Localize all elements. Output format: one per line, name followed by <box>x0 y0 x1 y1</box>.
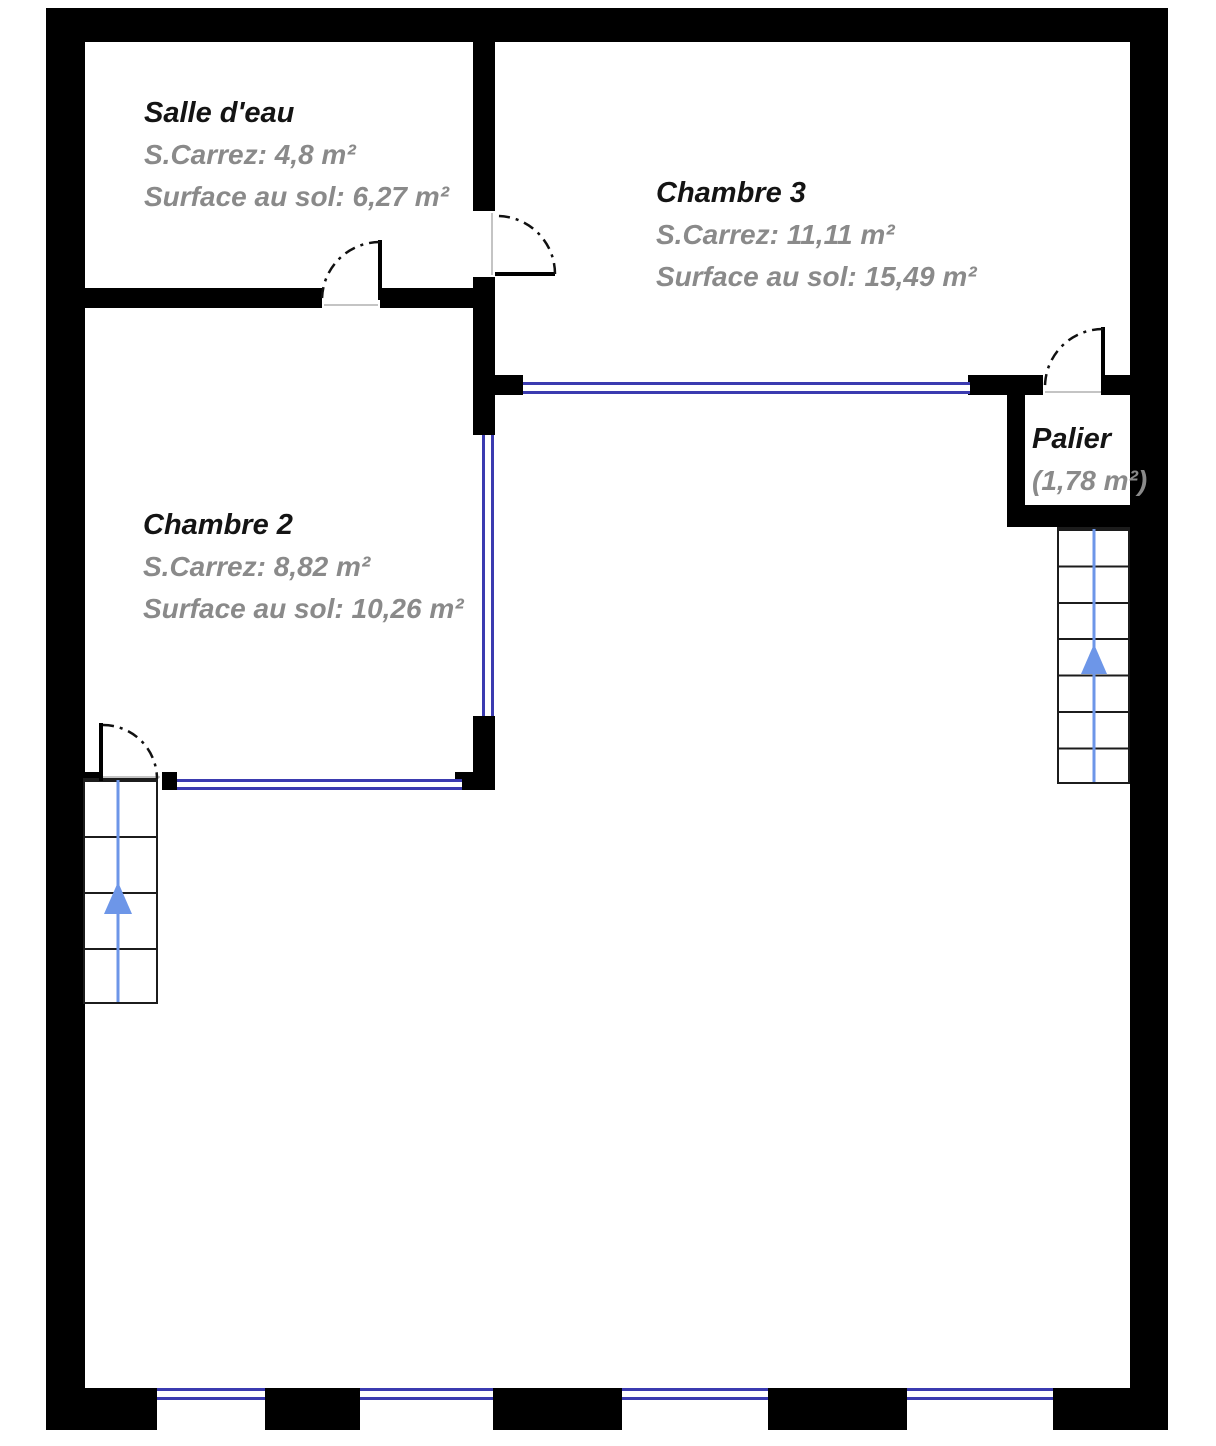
wall-segment <box>46 1388 157 1430</box>
window <box>177 779 462 790</box>
wall-segment <box>46 8 1168 42</box>
floor-plan: Salle d'eau S.Carrez: 4,8 m² Surface au … <box>0 0 1216 1446</box>
wall-segment <box>473 42 495 211</box>
wall-segment <box>265 1388 360 1430</box>
door-swing-arc <box>497 216 555 274</box>
door-swing-arc <box>1045 329 1103 387</box>
room-floor-area: Surface au sol: 6,27 m² <box>144 176 449 218</box>
room-label-palier: Palier (1,78 m²) <box>1032 418 1147 502</box>
room-carrez-area: S.Carrez: 11,11 m² <box>656 214 977 256</box>
room-floor-area: Surface au sol: 10,26 m² <box>143 588 464 630</box>
staircase-left <box>83 778 158 1004</box>
staircase-right <box>1057 527 1130 784</box>
room-label-salle-deau: Salle d'eau S.Carrez: 4,8 m² Surface au … <box>144 92 449 218</box>
wall-segment <box>1007 505 1168 527</box>
wall-segment <box>1101 375 1130 395</box>
wall-segment <box>162 772 177 790</box>
window <box>360 1388 493 1400</box>
room-name: Chambre 3 <box>656 172 977 214</box>
room-name: Chambre 2 <box>143 504 464 546</box>
room-label-chambre3: Chambre 3 S.Carrez: 11,11 m² Surface au … <box>656 172 977 298</box>
window <box>157 1388 265 1400</box>
wall-segment <box>968 375 1043 395</box>
wall-segment <box>46 8 85 1430</box>
room-area: (1,78 m²) <box>1032 460 1147 502</box>
room-floor-area: Surface au sol: 15,49 m² <box>656 256 977 298</box>
wall-segment <box>1130 8 1168 1430</box>
door-swing-arc <box>103 725 157 779</box>
room-carrez-area: S.Carrez: 8,82 m² <box>143 546 464 588</box>
wall-segment <box>495 375 523 395</box>
room-name: Palier <box>1032 418 1147 460</box>
room-name: Salle d'eau <box>144 92 449 134</box>
window <box>907 1388 1053 1400</box>
window <box>523 382 970 394</box>
wall-segment <box>1053 1388 1168 1430</box>
window <box>622 1388 768 1400</box>
window <box>482 435 494 716</box>
door-swing-arc <box>322 242 380 300</box>
room-label-chambre2: Chambre 2 S.Carrez: 8,82 m² Surface au s… <box>143 504 464 630</box>
wall-segment <box>768 1388 907 1430</box>
wall-segment <box>85 288 322 308</box>
wall-segment <box>473 277 495 435</box>
room-carrez-area: S.Carrez: 4,8 m² <box>144 134 449 176</box>
wall-segment <box>493 1388 622 1430</box>
